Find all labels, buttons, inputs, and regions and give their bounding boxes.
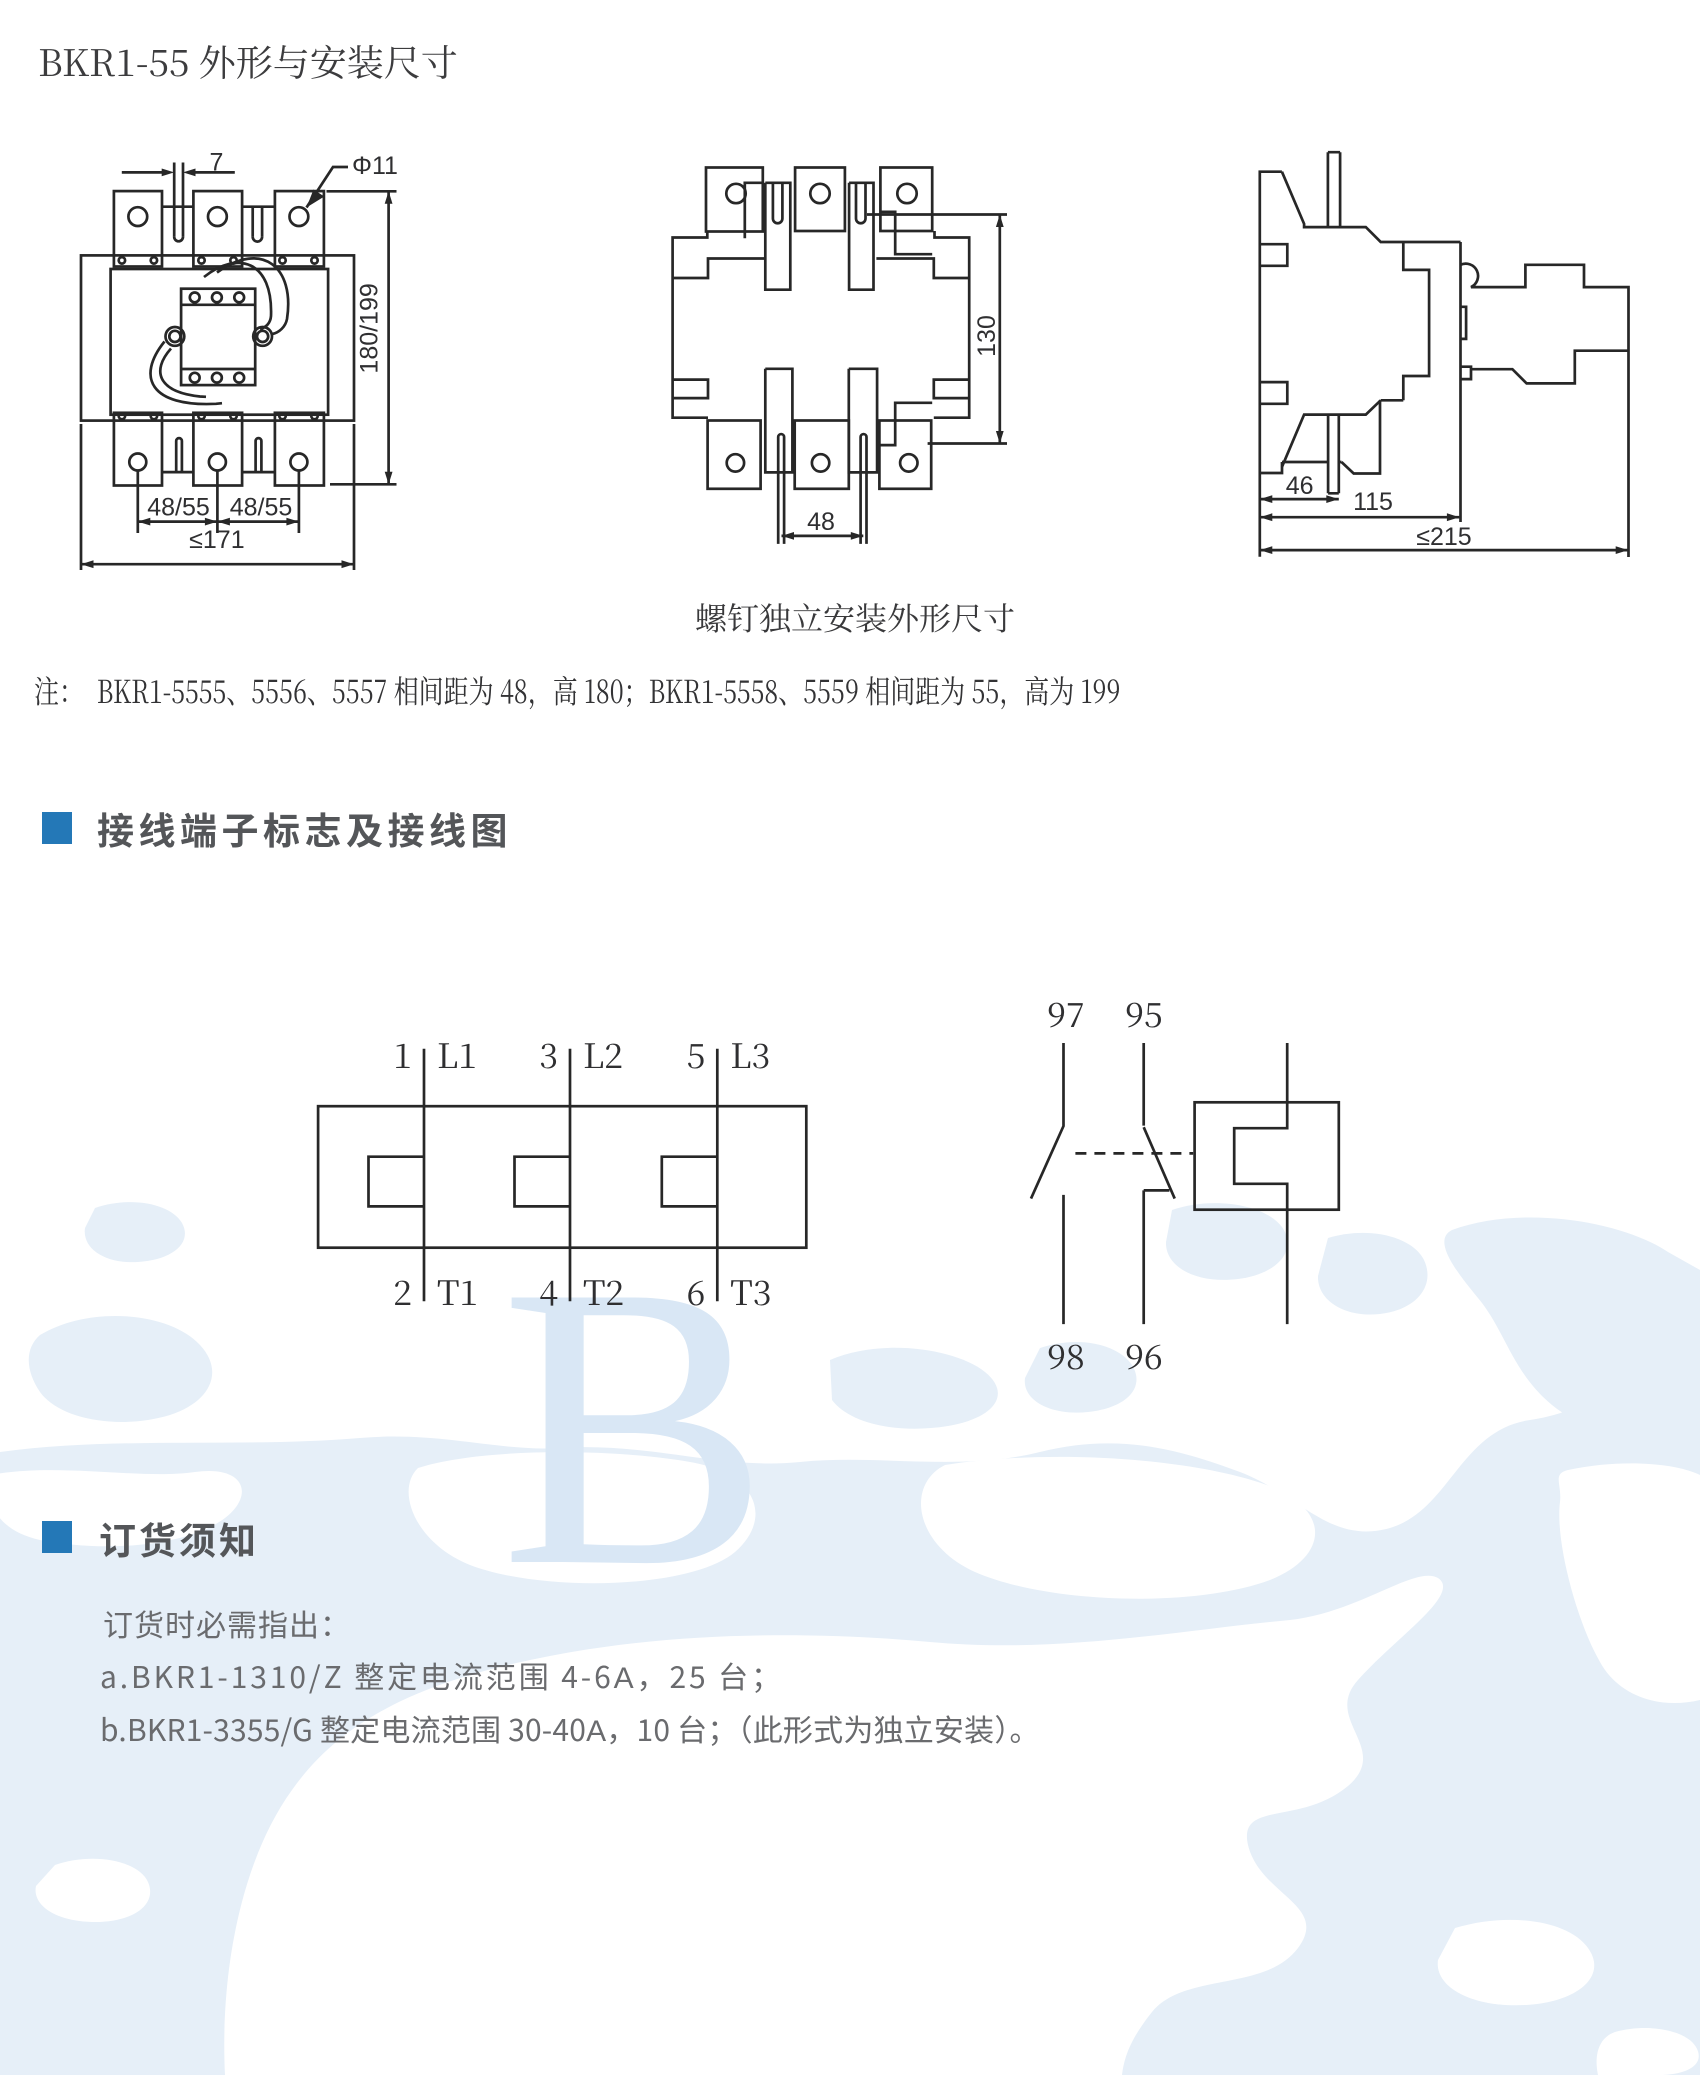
svg-text:6: 6 [687, 1266, 706, 1315]
svg-text:≤171: ≤171 [189, 526, 244, 554]
svg-text:T3: T3 [730, 1266, 771, 1315]
svg-text:5: 5 [687, 1029, 706, 1078]
svg-text:Φ11: Φ11 [352, 152, 398, 180]
svg-text:L1: L1 [437, 1029, 477, 1078]
svg-text:48/55: 48/55 [147, 494, 210, 522]
svg-text:48: 48 [807, 508, 835, 536]
svg-text:2: 2 [393, 1266, 412, 1315]
svg-text:1: 1 [393, 1029, 412, 1078]
svg-text:4: 4 [539, 1266, 558, 1315]
svg-text:97: 97 [1047, 988, 1084, 1037]
svg-text:96: 96 [1125, 1330, 1162, 1379]
svg-text:T1: T1 [437, 1266, 478, 1315]
svg-text:130: 130 [973, 315, 1001, 357]
svg-text:115: 115 [1353, 488, 1393, 516]
svg-text:L3: L3 [730, 1029, 770, 1078]
svg-text:46: 46 [1286, 472, 1314, 500]
svg-text:T2: T2 [583, 1266, 624, 1315]
svg-text:180/199: 180/199 [356, 283, 384, 373]
svg-text:98: 98 [1047, 1330, 1084, 1379]
svg-text:48/55: 48/55 [230, 494, 293, 522]
svg-text:≤215: ≤215 [1416, 523, 1471, 551]
svg-text:L2: L2 [583, 1029, 623, 1078]
svg-text:95: 95 [1125, 988, 1162, 1037]
svg-text:3: 3 [539, 1029, 558, 1078]
svg-text:7: 7 [210, 149, 224, 177]
